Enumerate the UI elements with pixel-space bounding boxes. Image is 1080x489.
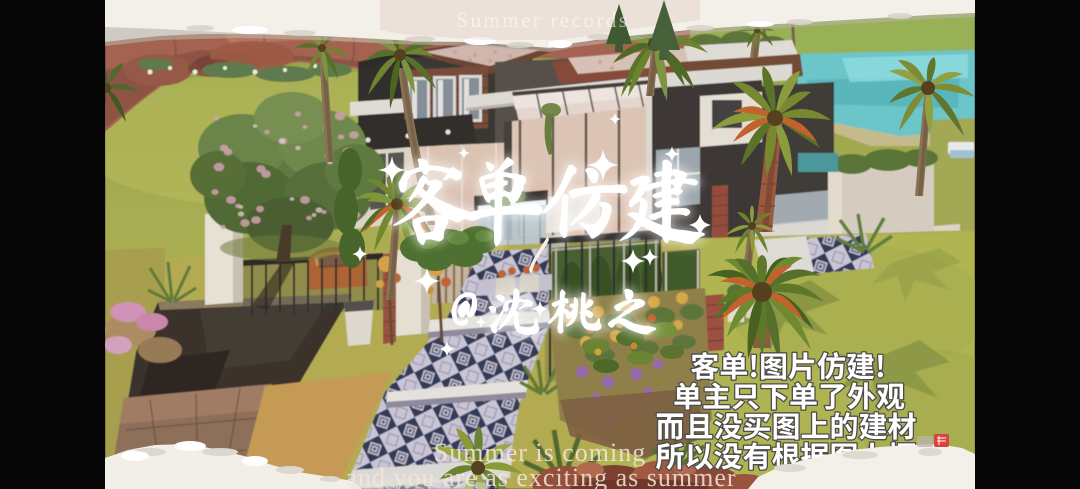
svg-text:and you are as exciting as sum: and you are as exciting as summer xyxy=(345,463,736,489)
svg-text:Summer records: Summer records xyxy=(456,8,629,32)
